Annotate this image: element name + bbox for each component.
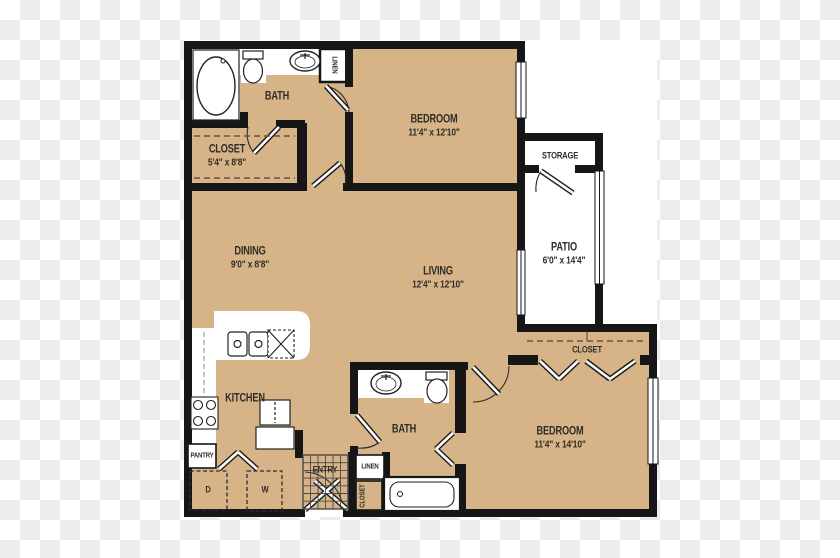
toilet1-icon (243, 51, 263, 83)
linen-top-label: LINEN (330, 56, 339, 73)
range-icon (268, 330, 294, 358)
dryer-label: D (205, 486, 210, 497)
storage-label: STORAGE (542, 152, 578, 163)
refrigerator-icon (256, 427, 294, 449)
bath2-label: BATH (392, 423, 416, 436)
closet2-label: CLOSET (572, 346, 602, 357)
patio-label: PATIO 6'0" x 14'4" (543, 241, 586, 266)
bedroom2-window (648, 378, 658, 464)
closet1-label: CLOSET 5'4" x 8'8" (208, 143, 246, 168)
bedroom1-window (516, 62, 526, 118)
bedroom2-label: BEDROOM 11'4" x 14'10" (534, 425, 585, 450)
patio-railing (595, 171, 604, 284)
storage-door-arc (536, 171, 541, 192)
floorplan-canvas: BATH CLOSET 5'4" x 8'8" BEDROOM 11'4" x … (0, 0, 840, 558)
washer-label: W (261, 486, 268, 497)
living-label: LIVING 12'4" x 12'10" (412, 265, 464, 290)
living-sliding-door (517, 250, 525, 315)
bath1-label: BATH (265, 90, 289, 103)
linen-hall-label: LINEN (361, 463, 378, 472)
bathtub2-icon (384, 477, 460, 511)
dining-label: DINING 9'0" x 8'8" (231, 245, 269, 270)
sink2-icon (371, 372, 401, 394)
closet-hall-label: CLOSET (359, 484, 368, 507)
kitchen-label: KITCHEN (225, 392, 265, 405)
pantry-label: PANTRY (190, 452, 213, 461)
cooktop-burners-icon (191, 397, 218, 429)
bathtub1-icon (193, 50, 239, 120)
toilet2-icon (426, 372, 447, 403)
entry-label: ENTRY (313, 466, 338, 477)
bedroom1-label: BEDROOM 11'4" x 12'10" (408, 113, 459, 138)
sink1-icon (290, 51, 320, 71)
